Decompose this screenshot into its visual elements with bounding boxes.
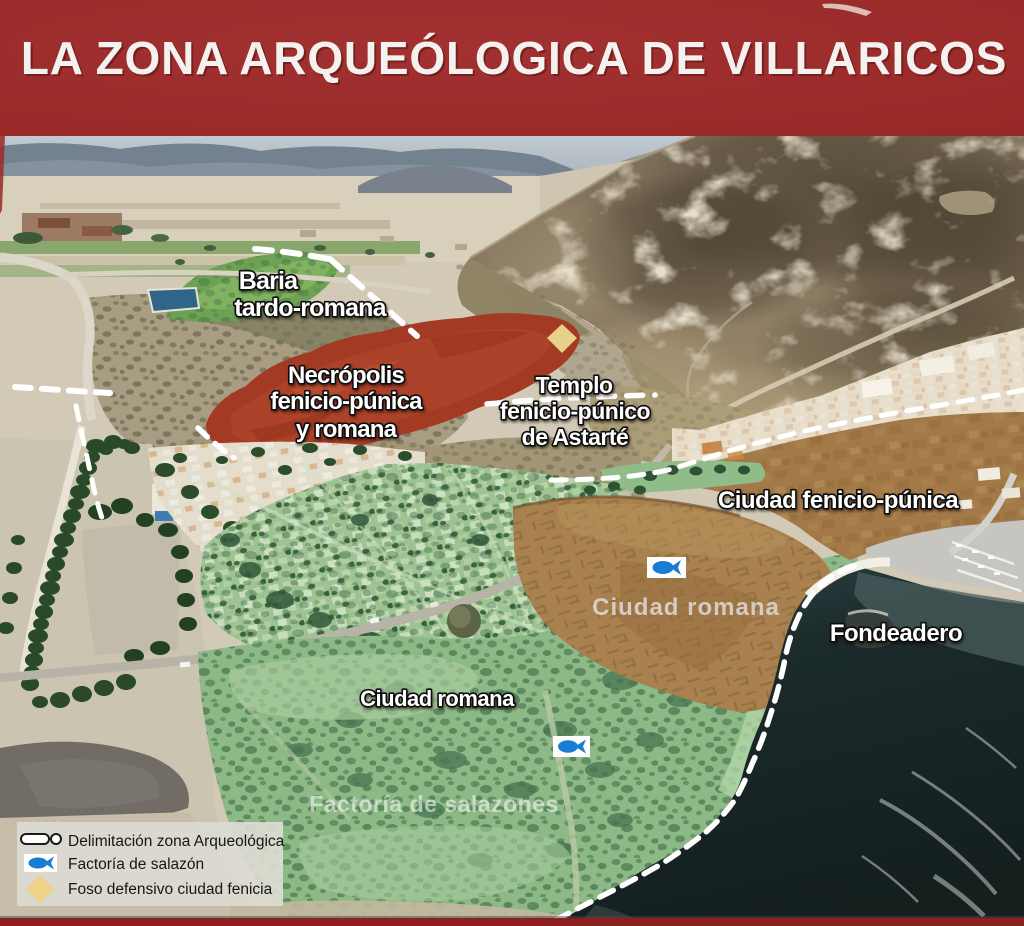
svg-text:fenicio-púnica: fenicio-púnica xyxy=(270,388,423,415)
svg-text:de Astarté: de Astarté xyxy=(522,424,629,450)
svg-text:Necrópolis: Necrópolis xyxy=(288,362,404,389)
svg-text:Ciudad romana: Ciudad romana xyxy=(592,594,780,621)
svg-text:Fondeadero: Fondeadero xyxy=(830,620,962,647)
svg-text:Delimitación zona Arqueológica: Delimitación zona Arqueológica xyxy=(68,833,285,850)
svg-text:y romana: y romana xyxy=(296,416,398,443)
svg-text:Templo: Templo xyxy=(535,372,613,398)
svg-text:LA ZONA ARQUEÓLOGICA DE VILLAR: LA ZONA ARQUEÓLOGICA DE VILLARICOS xyxy=(21,32,1007,84)
svg-text:Foso defensivo ciudad fenicia: Foso defensivo ciudad fenicia xyxy=(68,881,273,898)
svg-text:Ciudad romana: Ciudad romana xyxy=(360,686,515,711)
svg-text:Factoría de salazones: Factoría de salazones xyxy=(309,791,559,817)
svg-text:Baria: Baria xyxy=(239,267,299,295)
svg-text:Factoría de salazón: Factoría de salazón xyxy=(68,856,204,873)
svg-text:fenicio-púnico: fenicio-púnico xyxy=(500,398,651,424)
svg-text:Ciudad fenicio-púnica: Ciudad fenicio-púnica xyxy=(718,487,959,514)
svg-text:tardo-romana: tardo-romana xyxy=(234,294,387,322)
